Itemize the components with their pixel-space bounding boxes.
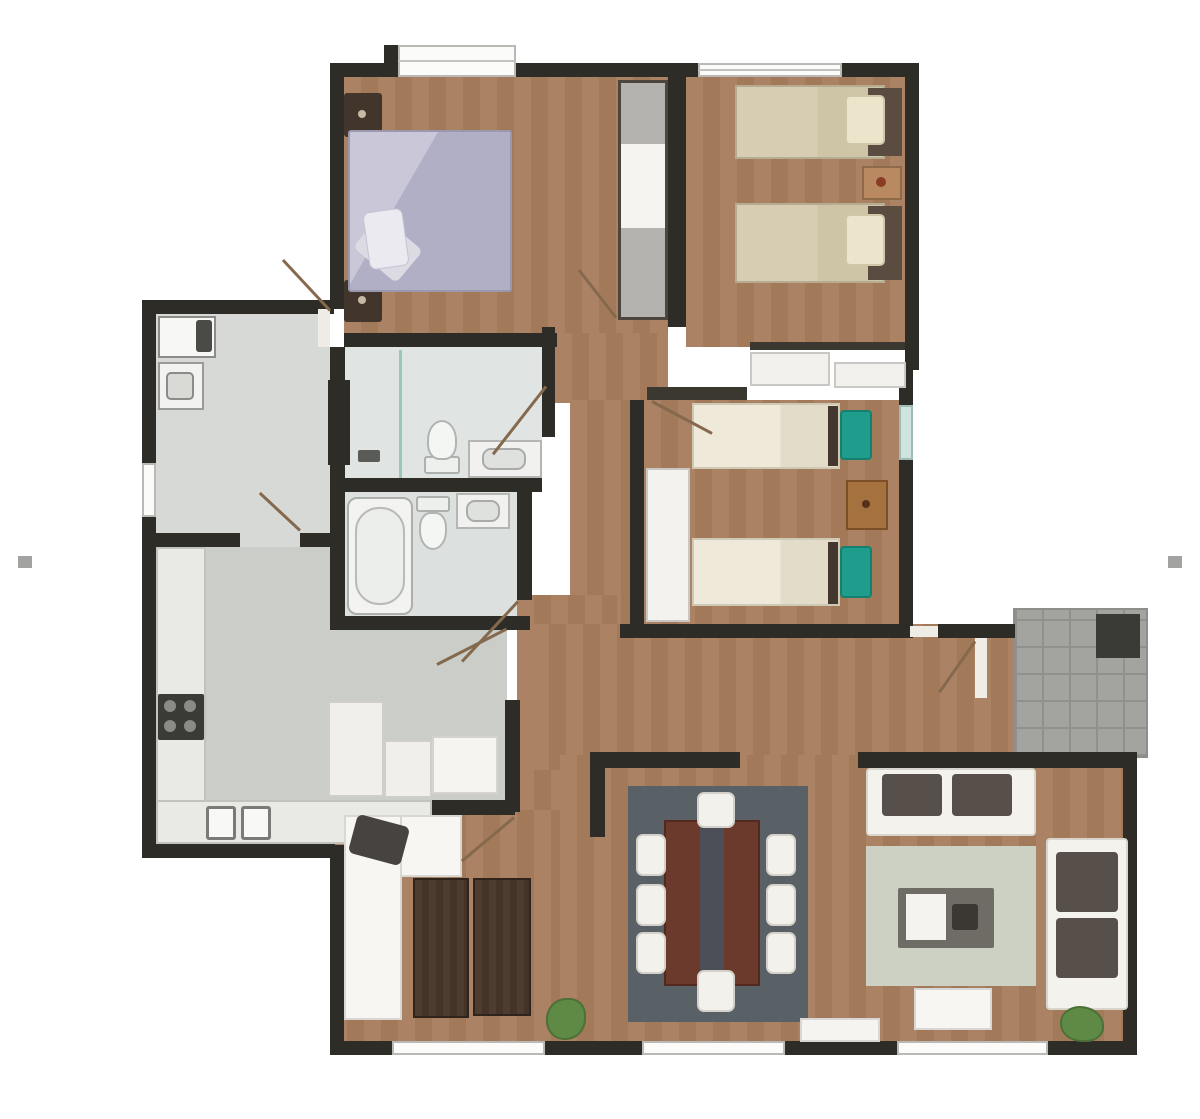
- window-left-wall: [142, 463, 156, 517]
- wall-bedroom-2-bottom: [750, 342, 905, 350]
- wall-closet-divider: [668, 77, 686, 327]
- plant-entry: [546, 998, 586, 1040]
- wall-bathroom-2-right: [517, 492, 532, 600]
- threshold-master-side-door: [318, 309, 330, 347]
- wall-bath-divider: [330, 478, 542, 492]
- vanity-2-basin: [466, 500, 500, 522]
- wall-kitchen-top-east: [300, 533, 332, 547]
- wall-bottom-entry: [330, 1041, 392, 1055]
- wall-bottom-living-east: [1048, 1041, 1137, 1055]
- pillow-bedroom2-b: [845, 214, 885, 266]
- kitchen-table: [432, 736, 498, 794]
- floor-plan-canvas: [0, 0, 1200, 1119]
- wardrobe-master: [618, 80, 668, 320]
- dining-table-runner: [700, 820, 724, 986]
- window-bedroom3-right: [899, 405, 913, 460]
- bedframe-bedroom3-a: [828, 406, 838, 466]
- dining-chair-west-2: [636, 884, 666, 926]
- coffee-table-tray: [906, 894, 946, 940]
- wall-entry-left: [330, 845, 344, 1055]
- kitchen-island-b: [384, 740, 432, 798]
- nightstand-master-bottom-knob: [358, 296, 366, 304]
- dining-chair-north: [697, 792, 735, 828]
- edge-mark-left: [18, 556, 32, 568]
- pillow-bedroom2-a: [845, 95, 885, 145]
- shower-glass: [399, 350, 402, 478]
- bed-bedroom3-b: [692, 538, 840, 606]
- dining-chair-west-1: [636, 834, 666, 876]
- wall-kitchen-right: [505, 700, 520, 812]
- nightstand-bedroom2-knob: [876, 177, 886, 187]
- wall-left-mid: [142, 517, 156, 850]
- wall-dining-stub: [590, 752, 605, 837]
- stove-burner-2: [184, 700, 196, 712]
- threshold-bedroom3-hall: [910, 626, 938, 637]
- wall-master-bottom: [344, 333, 557, 347]
- threshold-terrace: [975, 638, 987, 698]
- wall-top-center: [516, 63, 698, 77]
- wall-laundry-top: [142, 300, 334, 314]
- cabinet-bedroom3: [646, 468, 690, 622]
- dining-chair-east-2: [766, 884, 796, 926]
- kitchen-counter-left: [156, 547, 206, 835]
- shelf-bedroom2-a: [750, 352, 830, 386]
- tv-bench: [914, 988, 992, 1030]
- window-living-bottom: [897, 1041, 1048, 1055]
- dining-chair-east-3: [766, 932, 796, 974]
- edge-mark-right: [1168, 556, 1182, 568]
- window-dining-bottom: [642, 1041, 785, 1055]
- nightstand-master-top-knob: [358, 110, 366, 118]
- wall-bedroom-3-left: [630, 400, 644, 638]
- wall-master-left: [330, 63, 344, 309]
- shower-drain: [358, 450, 380, 462]
- stove-burner-4: [184, 720, 196, 732]
- stove-burner-3: [164, 720, 176, 732]
- wall-kitchen-top-west: [142, 533, 240, 547]
- sofa-right-cushion-a: [1056, 852, 1118, 912]
- entry-wardrobe-b: [473, 878, 531, 1016]
- sofa-right-cushion-b: [1056, 918, 1118, 978]
- kitchen-sink-b: [241, 806, 271, 840]
- pillow-master: [362, 207, 410, 270]
- dining-chair-west-3: [636, 932, 666, 974]
- window-master-top-mullion: [398, 60, 516, 62]
- wall-bedroom-3-bottom: [620, 624, 910, 638]
- toilet-2-tank: [416, 496, 450, 512]
- dining-chair-east-1: [766, 834, 796, 876]
- entry-wardrobe-a: [413, 878, 469, 1018]
- wall-right-upper: [905, 63, 919, 370]
- wall-bedroom-3-bottom-east: [938, 624, 1015, 638]
- sofa-top-cushion-b: [952, 774, 1012, 816]
- window-entry-bottom: [392, 1041, 545, 1055]
- kitchen-sink-a: [206, 806, 236, 840]
- pillow-bedroom3-a: [840, 410, 872, 460]
- dining-chair-south: [697, 970, 735, 1012]
- toilet-1-bowl: [427, 420, 457, 460]
- wall-bottom-dining-west: [545, 1041, 642, 1055]
- bathtub-inner: [355, 507, 405, 605]
- floor-hall-east: [532, 624, 1015, 770]
- wall-bathroom-2-left: [330, 492, 345, 616]
- wall-bedroom-3-top: [647, 387, 747, 400]
- wall-dining-top: [590, 752, 740, 768]
- bedframe-bedroom3-b: [828, 542, 838, 604]
- toilet-2-bowl: [419, 512, 447, 550]
- window-sill-dining: [800, 1018, 880, 1042]
- wall-left-upper: [142, 300, 156, 463]
- window-bedroom2-top-mullion: [698, 69, 842, 71]
- wall-hall-stub: [328, 380, 350, 465]
- bed-bedroom3-a: [692, 403, 840, 469]
- nightstand-bedroom3-knob: [862, 500, 870, 508]
- shelf-bedroom2-b: [834, 362, 906, 388]
- stove-burner-1: [164, 700, 176, 712]
- vanity-1-basin: [482, 448, 526, 470]
- terrace-box: [1096, 614, 1140, 658]
- washing-machine-drum: [196, 320, 212, 352]
- wall-bottom-living-west: [785, 1041, 897, 1055]
- plant-living: [1060, 1006, 1104, 1042]
- pillow-bedroom3-b: [840, 546, 872, 598]
- coffee-table-item: [952, 904, 978, 930]
- sofa-top-cushion-a: [882, 774, 942, 816]
- wall-window-stub: [384, 45, 398, 77]
- wall-bathroom-1-right: [542, 327, 555, 437]
- kitchen-island-a: [328, 701, 384, 797]
- laundry-sink-basin: [166, 372, 194, 400]
- wall-living-top: [858, 752, 1137, 768]
